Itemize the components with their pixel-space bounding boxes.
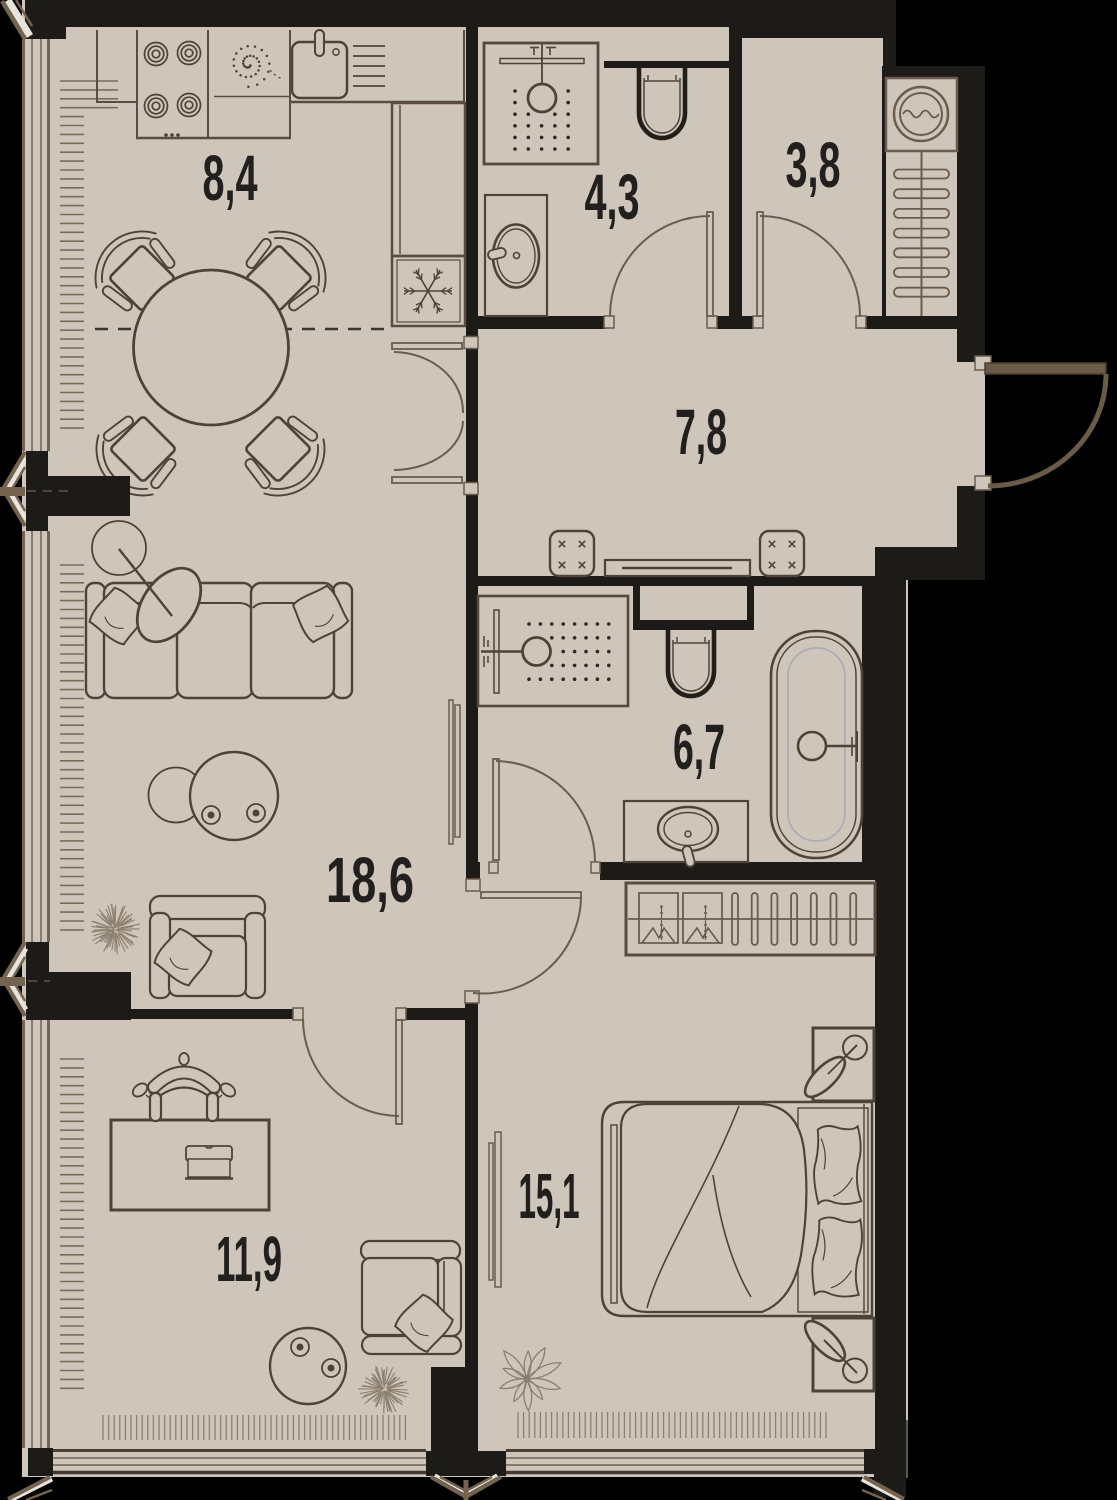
svg-text:3,8: 3,8 xyxy=(786,129,841,201)
svg-text:15,1: 15,1 xyxy=(519,1160,580,1232)
svg-text:7,8: 7,8 xyxy=(675,396,727,468)
svg-text:4,3: 4,3 xyxy=(585,161,640,233)
svg-text:8,4: 8,4 xyxy=(203,142,258,214)
svg-text:11,9: 11,9 xyxy=(216,1223,282,1295)
svg-text:18,6: 18,6 xyxy=(326,844,414,916)
svg-text:6,7: 6,7 xyxy=(673,711,725,783)
